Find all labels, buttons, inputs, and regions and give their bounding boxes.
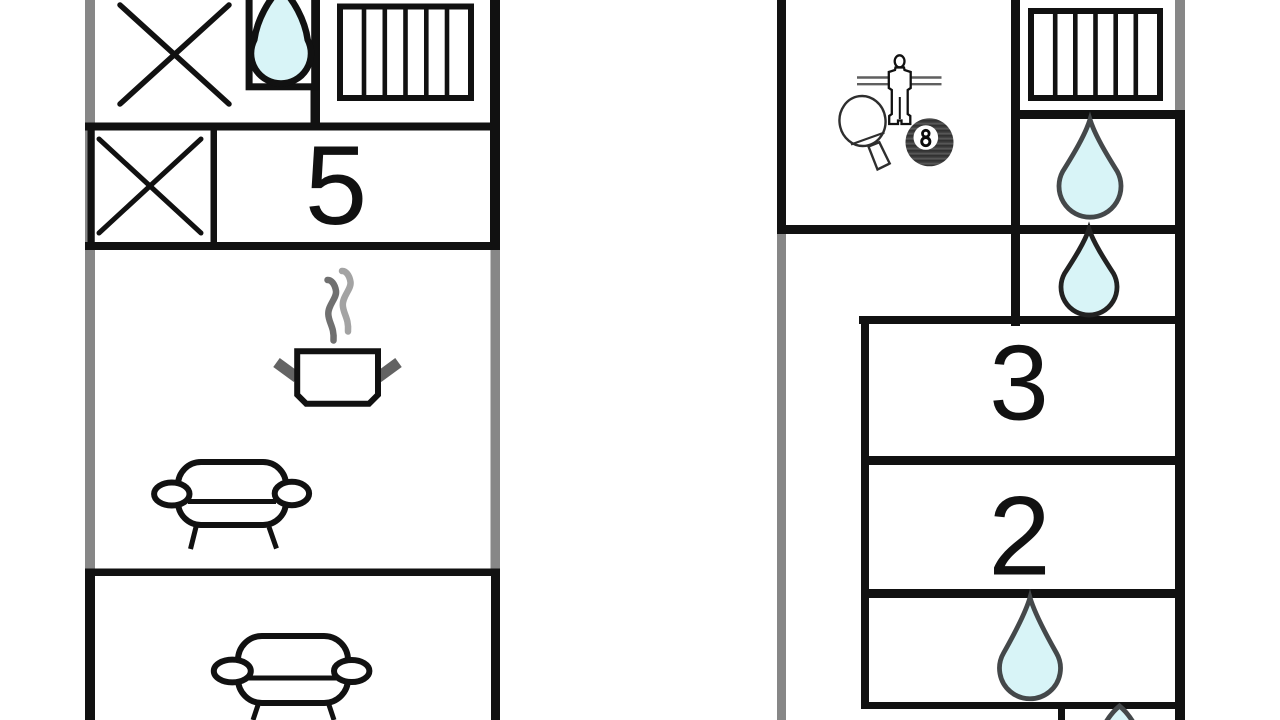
svg-text:3: 3 [989,323,1049,443]
svg-text:2: 2 [988,474,1050,599]
svg-text:5: 5 [305,123,367,248]
